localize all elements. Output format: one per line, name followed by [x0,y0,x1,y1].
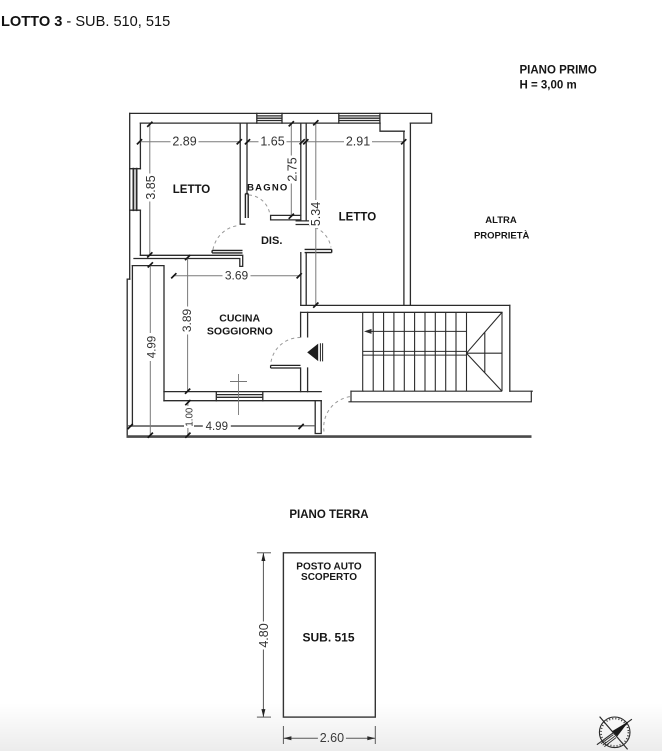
svg-text:3.89: 3.89 [180,308,194,332]
svg-text:LOTTO 3 - SUB. 510, 515: LOTTO 3 - SUB. 510, 515 [1,14,170,30]
svg-text:2.89: 2.89 [172,135,196,149]
svg-text:PIANO TERRA: PIANO TERRA [289,509,368,521]
svg-text:1.65: 1.65 [260,135,284,149]
svg-text:5.34: 5.34 [309,202,323,226]
svg-text:PIANO PRIMO: PIANO PRIMO [520,65,597,77]
svg-text:4.99: 4.99 [146,336,158,358]
svg-text:H = 3,00 m: H = 3,00 m [520,80,577,92]
svg-text:POSTO AUTO: POSTO AUTO [296,562,362,573]
svg-text:BAGNO: BAGNO [247,183,288,194]
svg-text:SOGGIORNO: SOGGIORNO [207,326,273,338]
svg-text:CUCINA: CUCINA [219,313,260,325]
svg-text:2.91: 2.91 [346,135,370,149]
svg-text:ALTRA: ALTRA [485,215,517,226]
svg-text:LETTO: LETTO [173,184,211,196]
svg-text:1.00: 1.00 [184,407,195,427]
svg-text:SCOPERTO: SCOPERTO [301,572,357,583]
svg-text:3.69: 3.69 [225,269,249,283]
svg-text:LETTO: LETTO [339,212,377,224]
svg-text:3.85: 3.85 [144,175,158,199]
svg-text:4.80: 4.80 [257,623,271,647]
svg-text:4.99: 4.99 [206,421,228,433]
svg-text:DIS.: DIS. [261,235,282,247]
svg-text:2.75: 2.75 [285,157,299,181]
svg-text:PROPRIETÀ: PROPRIETÀ [474,231,530,242]
svg-text:SUB. 515: SUB. 515 [302,631,354,645]
